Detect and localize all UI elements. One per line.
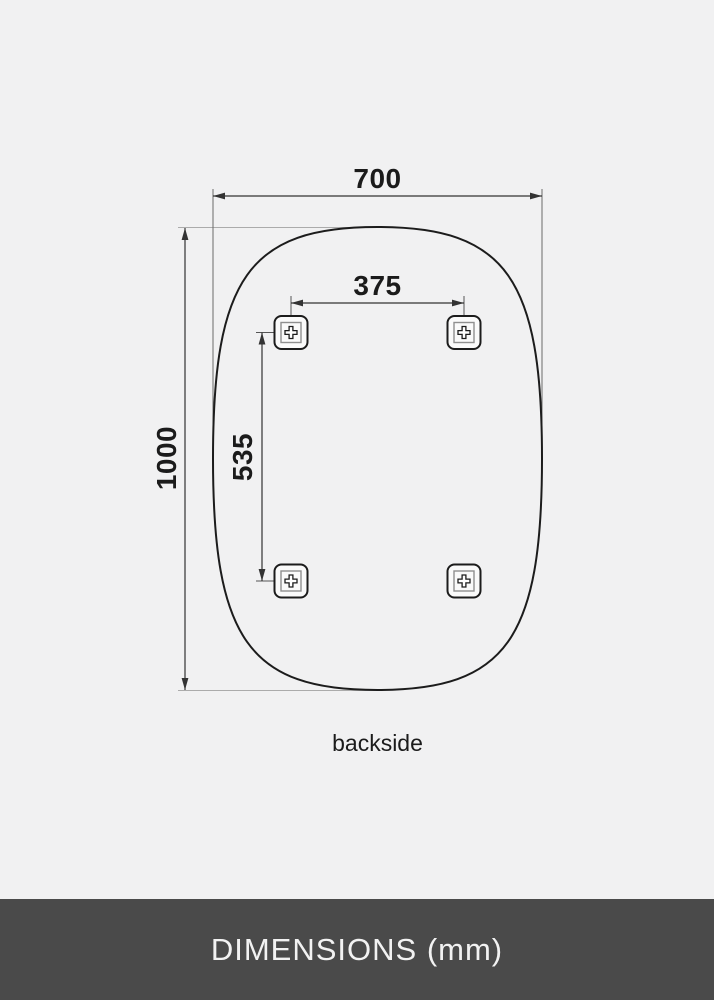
footer-bar: DIMENSIONS (mm) [0, 899, 714, 1000]
dimension-label-width: 700 [353, 163, 401, 194]
arrowhead-right-icon [530, 193, 542, 200]
arrowhead-right-icon [452, 300, 464, 307]
dimension-label-mount-vertical: 535 [227, 433, 258, 481]
mount-bracket-icon [275, 316, 308, 349]
arrowhead-up-icon [259, 333, 266, 345]
dimension-width: 700 [213, 163, 542, 199]
mount-bracket-icon [275, 565, 308, 598]
mount-bracket-icon [448, 316, 481, 349]
arrowhead-left-icon [291, 300, 303, 307]
view-label: backside [332, 730, 423, 756]
dimension-label-height: 1000 [151, 426, 182, 490]
dimension-mount-spacing-vertical: 535 [227, 333, 274, 582]
dimension-height: 1000 [151, 228, 188, 690]
dimension-label-mount-horizontal: 375 [353, 270, 401, 301]
dimension-mount-spacing-horizontal: 375 [291, 270, 464, 316]
dimension-diagram: 700 1000 375 535 [0, 0, 714, 899]
arrowhead-up-icon [182, 228, 189, 240]
extension-lines-height [178, 228, 383, 691]
arrowhead-down-icon [259, 569, 266, 581]
arrowhead-down-icon [182, 678, 189, 690]
arrowhead-left-icon [213, 193, 225, 200]
mount-bracket-icon [448, 565, 481, 598]
footer-label: DIMENSIONS (mm) [211, 932, 503, 968]
mirror-dimension-page: 700 1000 375 535 [0, 0, 714, 1000]
